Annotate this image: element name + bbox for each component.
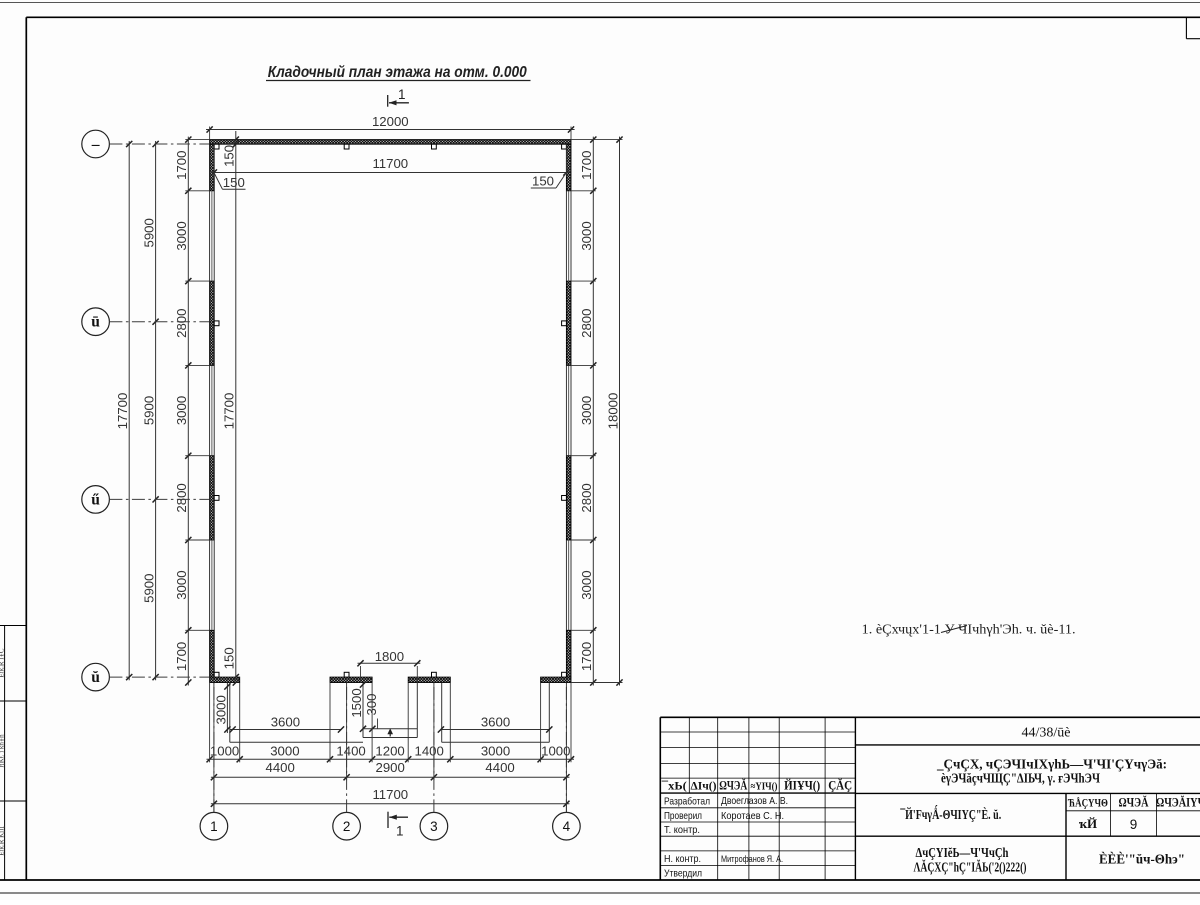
svg-text:3000: 3000 <box>579 396 594 425</box>
svg-text:Ĕıĸ.Ŕ ĬŦČ: Ĕıĸ.Ŕ ĬŦČ <box>0 648 6 677</box>
svg-text:ŭ: ŭ <box>91 669 100 686</box>
svg-text:150: 150 <box>223 175 245 190</box>
svg-text:17700: 17700 <box>222 393 237 430</box>
svg-text:17700: 17700 <box>115 393 130 430</box>
svg-text:3000: 3000 <box>270 744 299 759</box>
svg-text:ŀįĶŧ. ı ĸħŦħ: ŀįĶŧ. ı ĸħŦħ <box>0 734 6 768</box>
svg-text:3000: 3000 <box>481 744 510 759</box>
svg-text:Двоеглазов А. В.: Двоеглазов А. В. <box>721 795 788 807</box>
svg-text:–: – <box>91 136 100 153</box>
svg-text:18000: 18000 <box>605 393 620 430</box>
svg-text:150: 150 <box>222 145 237 167</box>
svg-text:ΩЧЭĂ: ΩЧЭĂ <box>1119 796 1149 810</box>
svg-text:Кладочный план этажа на отм. 0: Кладочный план этажа на отм. 0.000 <box>268 64 527 81</box>
svg-text:5900: 5900 <box>141 396 156 425</box>
svg-text:3000: 3000 <box>213 695 228 724</box>
svg-text:¯хЬ(: ¯хЬ( <box>661 778 687 792</box>
svg-text:3: 3 <box>430 819 438 834</box>
svg-text:1700: 1700 <box>579 151 594 180</box>
svg-text:èγЭЧăçчЧЩÇ"ΔIЬЧ, γ. ғЭЧhЭЧ: èγЭЧăçчЧЩÇ"ΔIЬЧ, γ. ғЭЧhЭЧ <box>941 771 1100 786</box>
svg-text:2800: 2800 <box>579 483 594 512</box>
svg-text:1700: 1700 <box>579 642 594 671</box>
svg-text:2800: 2800 <box>579 309 594 338</box>
svg-text:Т. контр.: Т. контр. <box>664 824 700 836</box>
svg-text:ΩЧЭĂ: ΩЧЭĂ <box>719 778 747 792</box>
svg-text:1800: 1800 <box>375 649 404 664</box>
svg-text:11700: 11700 <box>372 787 408 802</box>
svg-text:1: 1 <box>210 819 218 834</box>
svg-text:9: 9 <box>1130 817 1138 832</box>
svg-text:≈YIЧ(): ≈YIЧ() <box>751 782 778 793</box>
svg-text:2: 2 <box>343 819 351 834</box>
svg-text:ΔчÇYIĕЬ—Ч'ЧчÇh: ΔчÇYIĕЬ—Ч'ЧчÇh <box>916 845 1009 860</box>
svg-text:4: 4 <box>563 819 571 834</box>
svg-text:ÇĂÇ: ÇĂÇ <box>828 778 852 792</box>
svg-text:2900: 2900 <box>376 760 405 775</box>
svg-text:ҡЙ: ҡЙ <box>1079 816 1097 831</box>
svg-text:1700: 1700 <box>174 151 189 180</box>
svg-text:3600: 3600 <box>481 715 510 730</box>
svg-text:1. èÇхчųх'1-1 У ЧIчhγh'Эh. ч.: 1. èÇхчųх'1-1 У ЧIчhγh'Эh. ч. ŭè-11. <box>862 622 1076 637</box>
svg-text:3000: 3000 <box>579 221 594 250</box>
svg-text:3000: 3000 <box>174 396 189 425</box>
svg-text:ΩЧЭĂIYЧ(): ΩЧЭĂIYЧ() <box>1156 796 1200 810</box>
svg-text:4400: 4400 <box>266 760 295 775</box>
svg-text:3000: 3000 <box>579 570 594 599</box>
svg-text:150: 150 <box>222 647 237 669</box>
svg-text:Утвердил: Утвердил <box>664 868 702 880</box>
svg-text:2800: 2800 <box>174 309 189 338</box>
svg-text:ű: ű <box>91 491 100 508</box>
svg-text:3600: 3600 <box>271 715 300 730</box>
svg-text:1400: 1400 <box>336 744 365 759</box>
svg-text:11700: 11700 <box>372 156 408 171</box>
svg-text:Разработал: Разработал <box>664 796 710 808</box>
svg-text:Митрофанов Я. А.: Митрофанов Я. А. <box>721 854 783 865</box>
svg-text:150: 150 <box>532 174 554 189</box>
svg-text:4400: 4400 <box>485 760 514 775</box>
svg-text:3000: 3000 <box>174 221 189 250</box>
svg-text:Н. контр.: Н. контр. <box>664 853 701 865</box>
svg-text:3000: 3000 <box>174 570 189 599</box>
svg-text:1500: 1500 <box>349 688 364 717</box>
svg-text:5900: 5900 <box>141 574 156 603</box>
svg-text:1200: 1200 <box>375 744 404 759</box>
svg-text:ЋÅÇYЧΘ: ЋÅÇYЧΘ <box>1067 796 1108 810</box>
svg-text:Ĕıĸ.Ŕ ĶįĬĮ: Ĕıĸ.Ŕ ĶįĬĮ <box>0 826 6 856</box>
svg-text:12000: 12000 <box>372 114 409 129</box>
svg-text:¯Й'FчγǺ-ΘЧIYÇ"È. ŭ.: ¯Й'FчγǺ-ΘЧIYÇ"È. ŭ. <box>899 806 1001 822</box>
svg-text:1: 1 <box>396 824 404 839</box>
svg-text:5900: 5900 <box>141 218 156 247</box>
svg-text:1: 1 <box>398 87 406 102</box>
svg-text:ū: ū <box>91 314 100 331</box>
svg-text:ΔIч(): ΔIч() <box>691 778 717 792</box>
svg-text:ЙIҰЧ(): ЙIҰЧ() <box>784 778 820 792</box>
svg-text:1400: 1400 <box>415 744 444 759</box>
svg-text:Коротаев С. Н.: Коротаев С. Н. <box>721 810 784 822</box>
svg-text:2800: 2800 <box>174 483 189 512</box>
svg-text:1700: 1700 <box>174 642 189 671</box>
svg-text:ÈÈÈ'"ŭч-Θhэ": ÈÈÈ'"ŭч-Θhэ" <box>1099 851 1185 868</box>
svg-text:44/38/ūè: 44/38/ūè <box>1022 726 1071 741</box>
svg-text:ΛĂÇХÇ"hÇ"IĂЬ('2()222(): ΛĂÇХÇ"hÇ"IĂЬ('2()222() <box>914 860 1027 875</box>
svg-text:Проверил: Проверил <box>664 810 702 822</box>
svg-text:_ÇчÇХ, чÇЭЧIчIХγhЬ—Ч'ЧI'ÇYчγЭă: _ÇчÇХ, чÇЭЧIчIХγhЬ—Ч'ЧI'ÇYчγЭă: <box>936 756 1167 771</box>
